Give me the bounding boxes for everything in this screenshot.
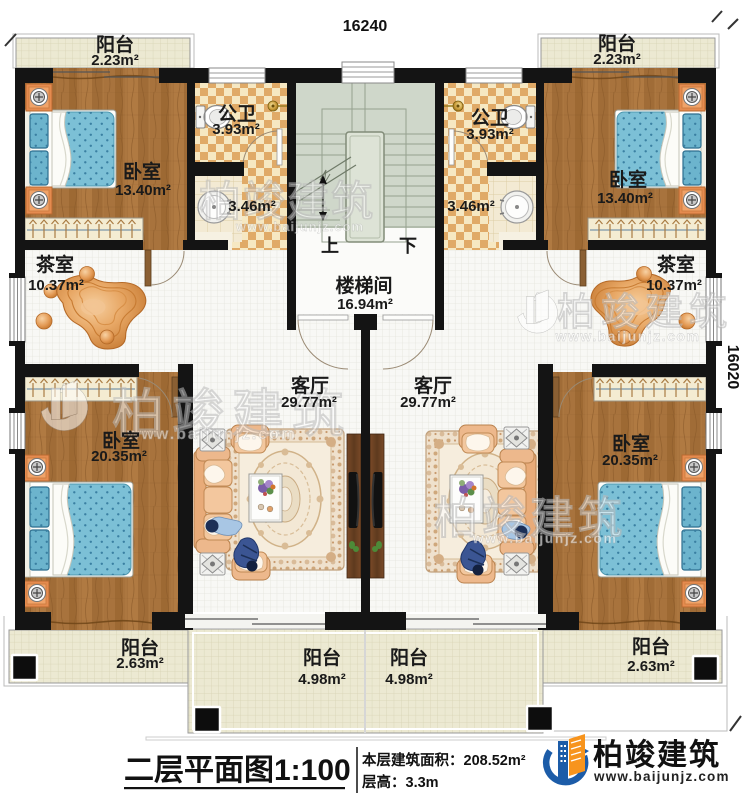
svg-text:阳台: 阳台: [390, 646, 428, 669]
svg-text:3.93m²: 3.93m²: [212, 121, 260, 138]
svg-text:20.35m²: 20.35m²: [602, 452, 658, 469]
svg-text:www.baijunjz.com: www.baijunjz.com: [126, 426, 297, 443]
svg-text:上: 上: [321, 236, 339, 256]
svg-text:13.40m²: 13.40m²: [597, 190, 653, 207]
svg-text:层高：3.3m: 层高：3.3m: [362, 773, 439, 791]
svg-text:10.37m²: 10.37m²: [28, 277, 84, 294]
svg-text:3.46m²: 3.46m²: [228, 198, 276, 215]
svg-text:16240: 16240: [343, 18, 388, 35]
svg-text:阳台: 阳台: [632, 635, 670, 658]
svg-text:卧室: 卧室: [123, 160, 161, 183]
svg-text:16.94m²: 16.94m²: [337, 296, 393, 313]
svg-text:阳台: 阳台: [303, 646, 341, 669]
svg-text:柏竣建筑: 柏竣建筑: [593, 738, 721, 772]
svg-text:29.77m²: 29.77m²: [400, 394, 456, 411]
svg-text:楼梯间: 楼梯间: [335, 274, 392, 297]
svg-text:4.98m²: 4.98m²: [298, 671, 346, 688]
svg-text:3.93m²: 3.93m²: [466, 126, 514, 143]
svg-text:20.35m²: 20.35m²: [91, 448, 147, 465]
svg-text:16020: 16020: [724, 345, 741, 390]
svg-text:茶室: 茶室: [36, 253, 74, 276]
svg-text:2.63m²: 2.63m²: [627, 658, 675, 675]
svg-text:下: 下: [399, 236, 417, 256]
svg-text:29.77m²: 29.77m²: [281, 394, 337, 411]
svg-text:www.baijunjz.com: www.baijunjz.com: [593, 769, 730, 784]
svg-text:2.23m²: 2.23m²: [593, 51, 641, 68]
svg-text:13.40m²: 13.40m²: [115, 182, 171, 199]
svg-text:2.63m²: 2.63m²: [116, 655, 164, 672]
svg-text:2.23m²: 2.23m²: [91, 52, 139, 69]
svg-text:柏竣建筑: 柏竣建筑: [199, 178, 375, 225]
svg-text:www.baijunjz.com: www.baijunjz.com: [235, 219, 364, 234]
svg-text:www.baijunjz.com: www.baijunjz.com: [472, 530, 618, 546]
svg-text:www.baijunjz.com: www.baijunjz.com: [555, 328, 701, 344]
svg-text:3.46m²: 3.46m²: [447, 198, 495, 215]
svg-text:本层建筑面积：208.52m²: 本层建筑面积：208.52m²: [362, 751, 526, 769]
svg-text:4.98m²: 4.98m²: [385, 671, 433, 688]
svg-text:二层平面图1:100: 二层平面图1:100: [124, 754, 351, 787]
svg-text:卧室: 卧室: [609, 168, 647, 191]
svg-text:10.37m²: 10.37m²: [646, 277, 702, 294]
svg-text:茶室: 茶室: [657, 253, 695, 276]
